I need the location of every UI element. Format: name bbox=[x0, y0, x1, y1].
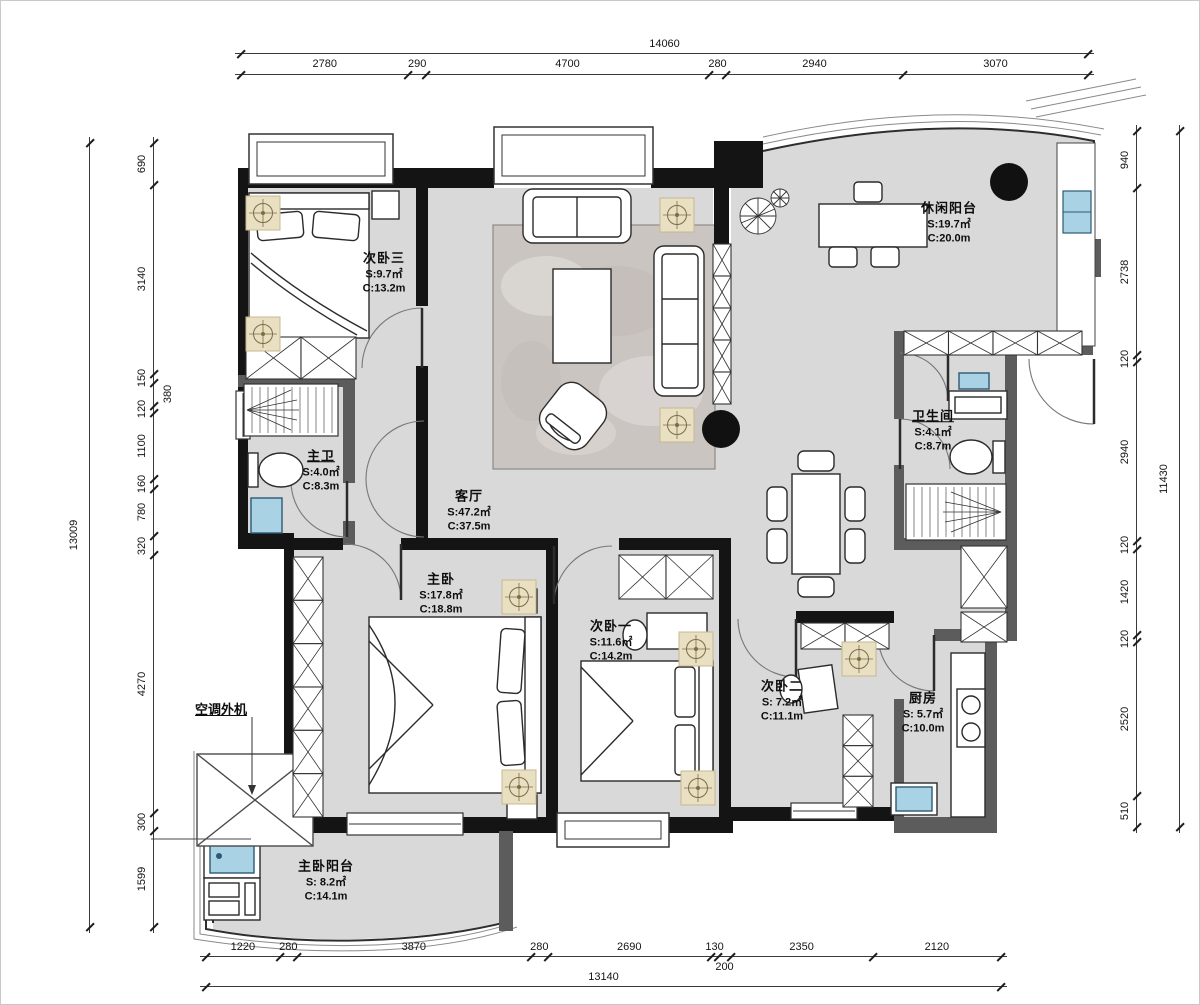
room-area-s: S: 5.7㎡ bbox=[902, 707, 945, 721]
dim-label: 380 bbox=[162, 385, 174, 403]
dim-label: 120 bbox=[1119, 349, 1131, 367]
dim-label: 1599 bbox=[136, 867, 148, 891]
dim-line bbox=[200, 986, 1007, 987]
floor-plan-canvas bbox=[1, 1, 1200, 1005]
room-name: 次卧三 bbox=[363, 250, 406, 267]
dim-label: 2940 bbox=[1119, 440, 1131, 464]
room-area-c: C:8.3m bbox=[302, 479, 339, 493]
room-area-s: S:4.0㎡ bbox=[302, 465, 339, 479]
dim-line bbox=[235, 74, 1094, 75]
master-bath-shower bbox=[244, 384, 338, 436]
room-area-c: C:20.0m bbox=[921, 231, 977, 245]
room-name: 次卧一 bbox=[590, 618, 633, 635]
dim-label: 1100 bbox=[136, 434, 148, 458]
ceiling-lamp-icon bbox=[660, 408, 694, 442]
dim-label: 11430 bbox=[1158, 464, 1170, 494]
room-area-c: C:8.7m bbox=[912, 439, 954, 453]
room-area-c: C:14.1m bbox=[298, 889, 354, 903]
room-area-s: S: 8.2㎡ bbox=[298, 875, 354, 889]
dim-label: 3140 bbox=[136, 267, 148, 291]
dim-label: 1220 bbox=[231, 941, 255, 953]
dim-label: 690 bbox=[136, 155, 148, 173]
room-label-bathroom: 卫生间S:4.1㎡C:8.7m bbox=[912, 408, 954, 453]
dim-label: 510 bbox=[1119, 802, 1131, 820]
room-area-s: S:9.7㎡ bbox=[363, 267, 406, 281]
dim-line bbox=[89, 137, 90, 933]
dim-label: 130 bbox=[705, 941, 723, 953]
dim-label: 13140 bbox=[588, 971, 619, 983]
ceiling-lamp-icon bbox=[679, 632, 713, 666]
room-label-master-balcony: 主卧阳台S: 8.2㎡C:14.1m bbox=[298, 858, 354, 903]
dim-label: 120 bbox=[136, 400, 148, 418]
room-area-s: S: 7.2㎡ bbox=[761, 695, 803, 709]
bathroom-shower bbox=[906, 484, 1006, 540]
room-area-c: C:11.1m bbox=[761, 709, 803, 723]
sofa-right bbox=[654, 246, 704, 396]
dim-label: 2940 bbox=[802, 58, 826, 70]
room-name: 主卧阳台 bbox=[298, 858, 354, 875]
room-name: 主卫 bbox=[302, 448, 339, 465]
room-area-c: C:37.5m bbox=[447, 519, 490, 533]
ac-unit-label: 空调外机 bbox=[195, 699, 247, 718]
room-label-master-bedroom: 主卧S:17.8㎡C:18.8m bbox=[419, 571, 462, 616]
room-name: 次卧二 bbox=[761, 678, 803, 695]
room-name: 卫生间 bbox=[912, 408, 954, 425]
ceiling-lamp-icon bbox=[246, 317, 280, 351]
dim-label: 280 bbox=[530, 941, 548, 953]
ceiling-lamp-icon bbox=[246, 196, 280, 230]
room-area-s: S:4.1㎡ bbox=[912, 425, 954, 439]
dim-label: 940 bbox=[1119, 150, 1131, 168]
room-name: 客厅 bbox=[447, 488, 490, 505]
dim-label: 280 bbox=[279, 941, 297, 953]
ac-platform bbox=[151, 754, 313, 846]
dim-label: 200 bbox=[715, 961, 733, 973]
dim-label: 3870 bbox=[402, 941, 426, 953]
dim-line bbox=[235, 53, 1094, 54]
room-name: 休闲阳台 bbox=[921, 200, 977, 217]
room-label-kitchen: 厨房S: 5.7㎡C:10.0m bbox=[902, 690, 945, 735]
dim-label: 120 bbox=[1119, 630, 1131, 648]
room-area-c: C:10.0m bbox=[902, 721, 945, 735]
room-area-c: C:14.2m bbox=[590, 649, 633, 663]
coffee-table bbox=[553, 269, 611, 363]
washer-unit bbox=[204, 834, 260, 920]
dim-label: 2350 bbox=[789, 941, 813, 953]
dim-label: 4700 bbox=[555, 58, 579, 70]
dim-label: 3070 bbox=[983, 58, 1007, 70]
dim-label: 4270 bbox=[136, 672, 148, 696]
room-label-bedroom-1: 次卧一S:11.6㎡C:14.2m bbox=[590, 618, 633, 663]
room-name: 主卧 bbox=[419, 571, 462, 588]
ceiling-lamp-icon bbox=[681, 771, 715, 805]
dim-label: 2738 bbox=[1119, 259, 1131, 283]
dim-line bbox=[200, 956, 1007, 957]
room-area-c: C:18.8m bbox=[419, 602, 462, 616]
dim-label: 14060 bbox=[649, 38, 680, 50]
sofa-top bbox=[523, 189, 631, 243]
room-area-s: S:17.8㎡ bbox=[419, 588, 462, 602]
dim-label: 2780 bbox=[312, 58, 336, 70]
dim-label: 320 bbox=[136, 536, 148, 554]
dim-label: 2520 bbox=[1119, 707, 1131, 731]
room-label-bedroom-3: 次卧三S:9.7㎡C:13.2m bbox=[363, 250, 406, 295]
room-label-master-bath: 主卫S:4.0㎡C:8.3m bbox=[302, 448, 339, 493]
dim-label: 780 bbox=[136, 503, 148, 521]
dim-label: 160 bbox=[136, 475, 148, 493]
room-label-leisure-balcony: 休闲阳台S:19.7㎡C:20.0m bbox=[921, 200, 977, 245]
dim-line bbox=[1136, 125, 1137, 833]
room-area-s: S:19.7㎡ bbox=[921, 217, 977, 231]
ceiling-lamp-icon bbox=[502, 770, 536, 804]
dim-label: 2690 bbox=[617, 941, 641, 953]
room-area-c: C:13.2m bbox=[363, 281, 406, 295]
dim-label: 120 bbox=[1119, 536, 1131, 554]
room-name: 厨房 bbox=[902, 690, 945, 707]
ceiling-lamp-icon bbox=[842, 642, 876, 676]
dim-label: 290 bbox=[408, 58, 426, 70]
room-label-bedroom-2: 次卧二S: 7.2㎡C:11.1m bbox=[761, 678, 803, 723]
dim-line bbox=[1179, 125, 1180, 833]
ceiling-lamp-icon bbox=[660, 198, 694, 232]
dim-label: 2120 bbox=[925, 941, 949, 953]
floorplan-page: 次卧三S:9.7㎡C:13.2m休闲阳台S:19.7㎡C:20.0m主卫S:4.… bbox=[0, 0, 1200, 1005]
ceiling-lamp-icon bbox=[502, 580, 536, 614]
dim-label: 300 bbox=[136, 812, 148, 830]
bed-bedroom-1 bbox=[581, 661, 713, 781]
dim-label: 280 bbox=[708, 58, 726, 70]
room-area-s: S:11.6㎡ bbox=[590, 635, 633, 649]
room-area-s: S:47.2㎡ bbox=[447, 505, 490, 519]
room-label-living-room: 客厅S:47.2㎡C:37.5m bbox=[447, 488, 490, 533]
dim-label: 13009 bbox=[68, 520, 80, 551]
dim-label: 1420 bbox=[1119, 580, 1131, 604]
dim-label: 150 bbox=[136, 369, 148, 387]
